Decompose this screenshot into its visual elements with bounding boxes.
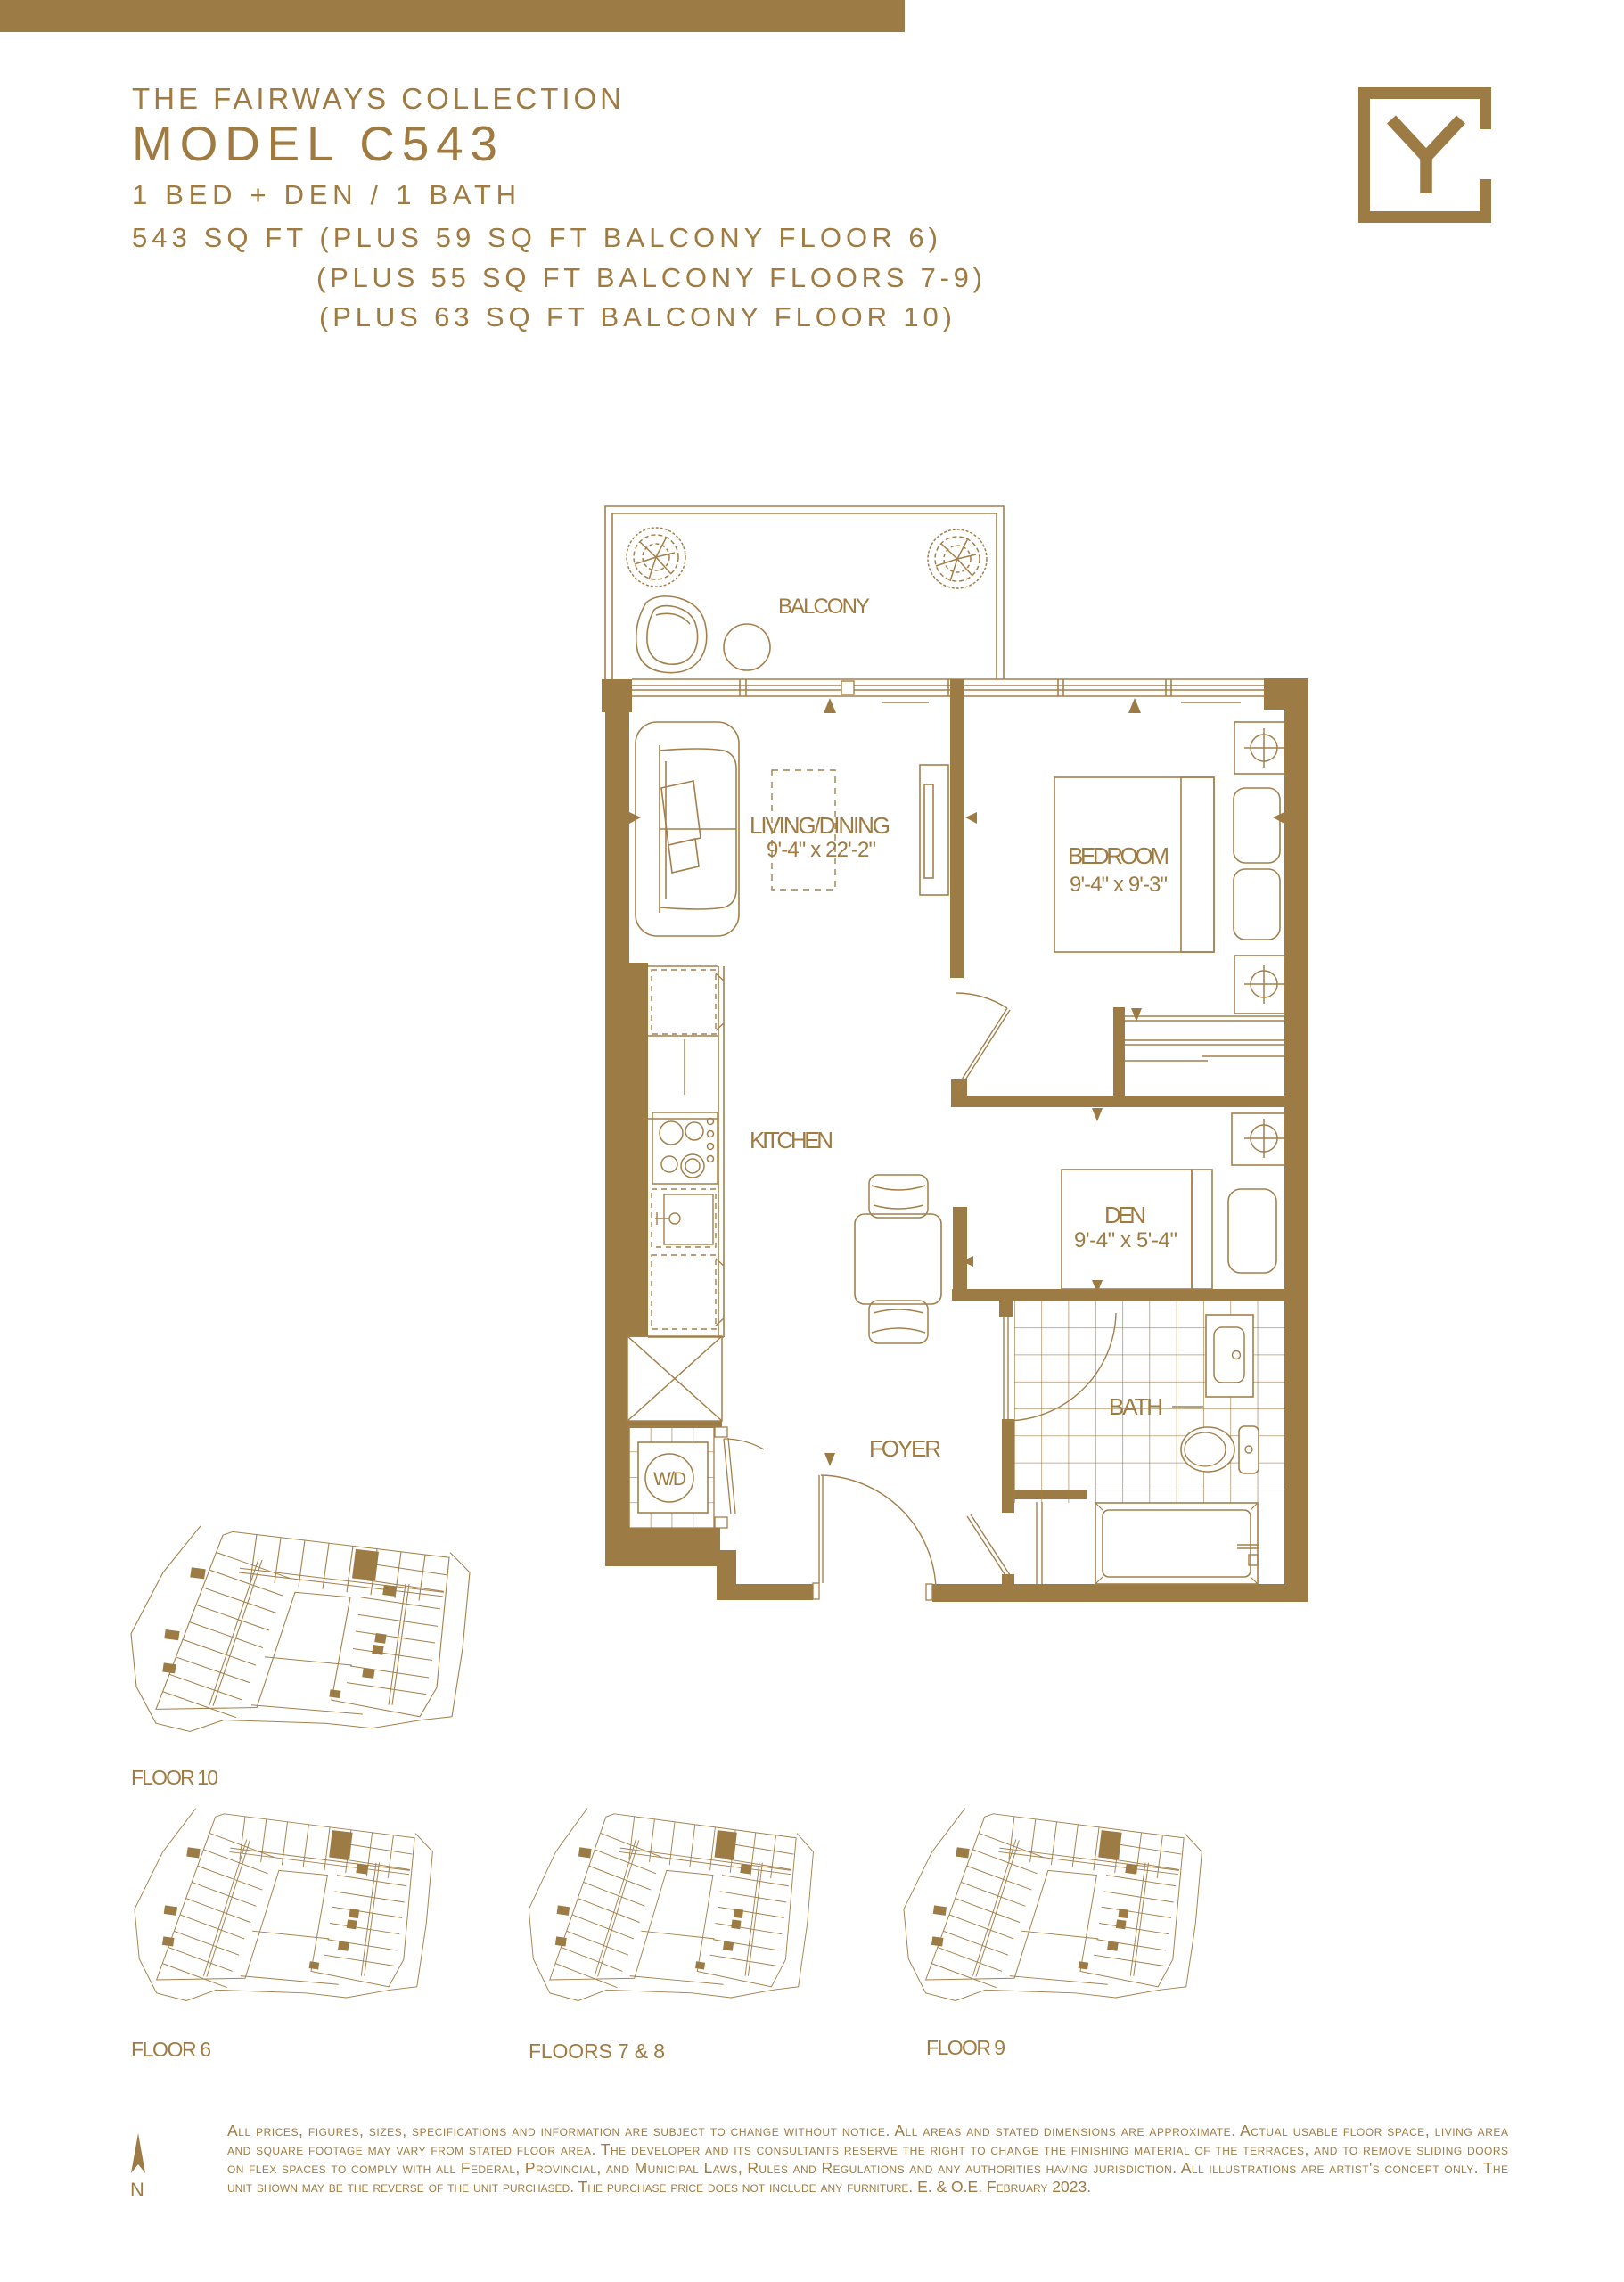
svg-text:on flex spaces to comply with: on flex spaces to comply with all Federa… <box>227 2159 1508 2177</box>
svg-text:LIVING/DINING: LIVING/DINING <box>750 812 892 839</box>
svg-text:and square footage may vary fr: and square footage may vary from stated … <box>227 2140 1508 2158</box>
svg-text:unit shown may be the reverse: unit shown may be the reverse of the uni… <box>227 2178 1091 2196</box>
svg-text:9'-4" x 22'-2": 9'-4" x 22'-2" <box>767 838 878 862</box>
svg-text:THE FAIRWAYS COLLECTION: THE FAIRWAYS COLLECTION <box>132 82 629 115</box>
svg-text:BALCONY: BALCONY <box>778 595 874 619</box>
svg-text:543 SQ FT (PLUS 59 SQ FT BALCO: 543 SQ FT (PLUS 59 SQ FT BALCONY FLOOR 6… <box>132 222 944 253</box>
svg-text:FLOOR 6: FLOOR 6 <box>131 2038 212 2061</box>
svg-text:FOYER: FOYER <box>869 1435 944 1462</box>
svg-text:9'-4" x 9'-3": 9'-4" x 9'-3" <box>1070 873 1169 897</box>
svg-text:1 BED + DEN / 1 BATH: 1 BED + DEN / 1 BATH <box>132 179 522 210</box>
svg-text:FLOOR 9: FLOOR 9 <box>926 2036 1006 2059</box>
svg-text:DEN: DEN <box>1104 1202 1149 1228</box>
svg-text:BEDROOM: BEDROOM <box>1068 842 1171 869</box>
svg-text:W/D: W/D <box>653 1469 686 1490</box>
svg-text:9'-4" x 5'-4": 9'-4" x 5'-4" <box>1074 1228 1179 1252</box>
svg-text:(PLUS 63 SQ FT BALCONY FLOOR 1: (PLUS 63 SQ FT BALCONY FLOOR 10) <box>319 301 958 332</box>
svg-text:(PLUS 55 SQ FT BALCONY FLOORS: (PLUS 55 SQ FT BALCONY FLOORS 7-9) <box>316 262 988 293</box>
svg-text:MODEL C543: MODEL C543 <box>132 116 506 171</box>
svg-text:FLOORS 7 & 8: FLOORS 7 & 8 <box>529 2040 666 2063</box>
svg-text:FLOOR 10: FLOOR 10 <box>131 1766 219 1789</box>
svg-text:All prices, figures, sizes, sp: All prices, figures, sizes, specificatio… <box>227 2122 1508 2139</box>
svg-text:KITCHEN: KITCHEN <box>750 1127 837 1153</box>
svg-text:BATH: BATH <box>1109 1393 1166 1420</box>
svg-text:N: N <box>130 2179 144 2201</box>
